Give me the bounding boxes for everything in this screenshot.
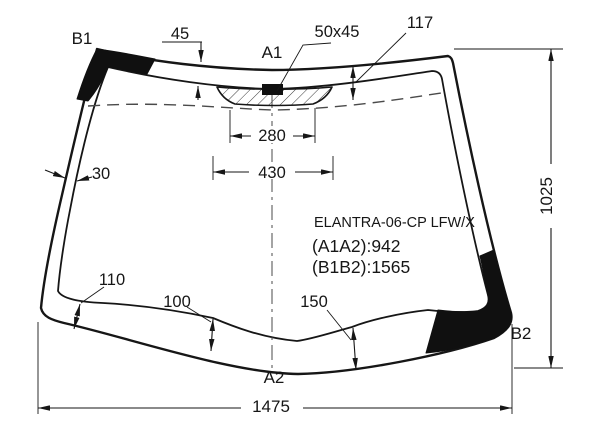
windshield-diagram: 45 50x45 117 280 430 30 110 bbox=[0, 0, 600, 434]
dim-b1b2-note: (B1B2):1565 bbox=[312, 257, 410, 277]
dim-bottom-center-band-value: 100 bbox=[163, 293, 191, 311]
label-b1: B1 bbox=[72, 29, 93, 48]
dim-overall-height-value: 1025 bbox=[537, 177, 556, 215]
dim-pad-outer-width-value: 430 bbox=[258, 164, 286, 182]
dim-pad-size-value: 50x45 bbox=[315, 23, 360, 41]
dim-pad-inner-width-value: 280 bbox=[258, 127, 286, 145]
dim-overall-width-value: 1475 bbox=[252, 397, 290, 416]
label-a2: A2 bbox=[264, 368, 285, 387]
dim-top-band-value: 45 bbox=[171, 25, 189, 43]
label-a1: A1 bbox=[262, 43, 283, 62]
part-number: ELANTRA-06-CP LFW/X bbox=[314, 215, 475, 231]
dim-left-band-value: 30 bbox=[92, 165, 110, 183]
dim-bottom-right-band-value: 150 bbox=[300, 293, 328, 311]
dim-bottom-left-band-value: 110 bbox=[99, 271, 125, 289]
dim-right-top-band-value: 117 bbox=[407, 14, 433, 32]
diagram-canvas: 45 50x45 117 280 430 30 110 bbox=[0, 0, 600, 434]
dim-a1a2-note: (A1A2):942 bbox=[312, 236, 401, 256]
label-b2: B2 bbox=[511, 324, 532, 343]
